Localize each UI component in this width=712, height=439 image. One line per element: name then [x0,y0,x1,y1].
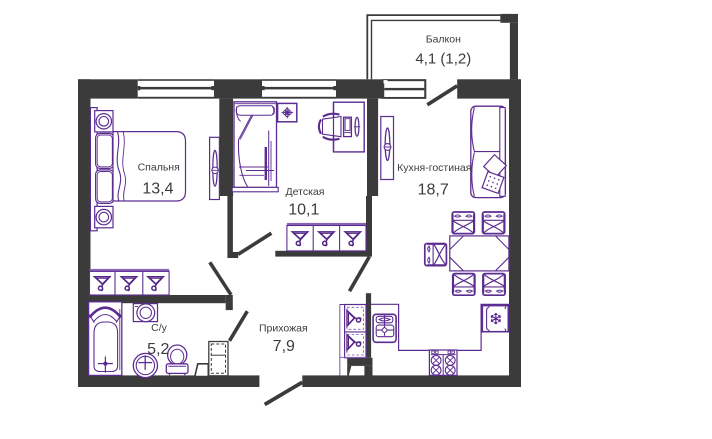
svg-text:7,9: 7,9 [273,338,295,355]
svg-text:Прихожая: Прихожая [259,323,308,335]
svg-text:13,4: 13,4 [142,180,173,197]
svg-text:5,2: 5,2 [147,341,169,358]
svg-text:Балкон: Балкон [426,34,461,46]
svg-text:Кухня-гостиная: Кухня-гостиная [397,162,471,174]
svg-text:18,7: 18,7 [418,182,449,199]
svg-text:10,1: 10,1 [288,202,319,219]
svg-text:Спальня: Спальня [138,162,180,174]
svg-text:Детская: Детская [286,186,325,198]
svg-text:4,1 (1,2): 4,1 (1,2) [415,51,471,68]
svg-text:С/у: С/у [151,322,168,334]
